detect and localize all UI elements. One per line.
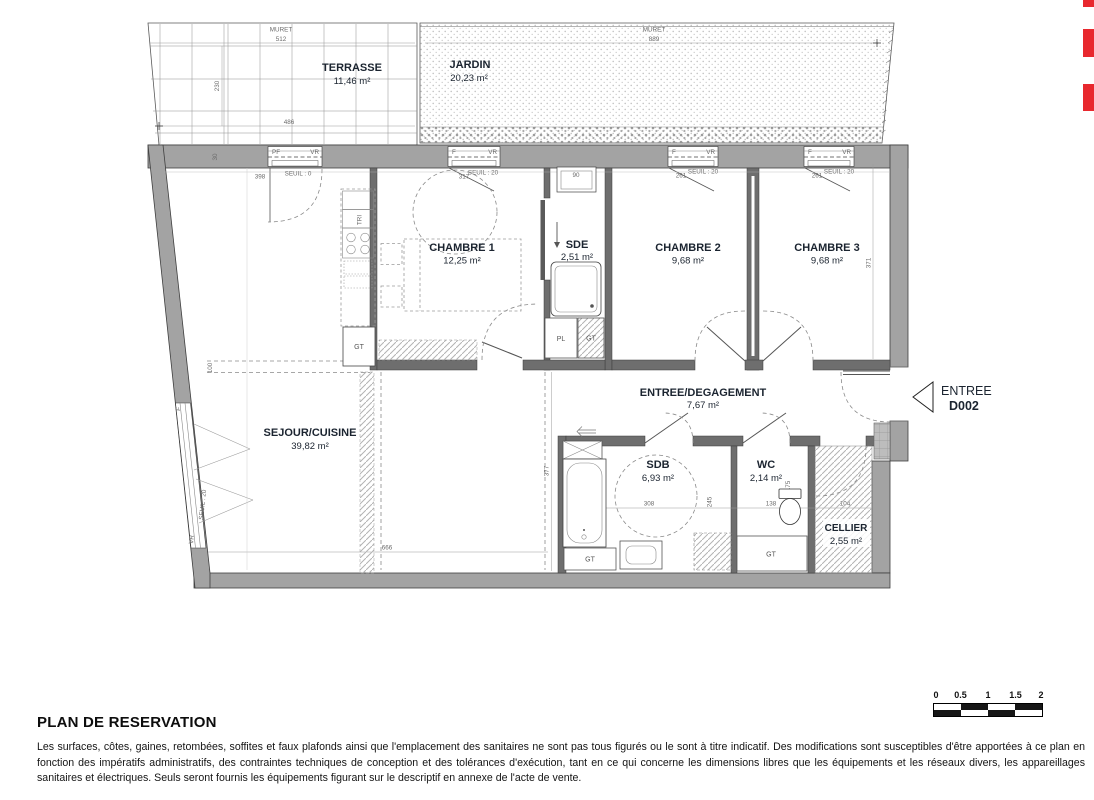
sdb-gt-label: GT xyxy=(585,557,595,564)
wall-wc-cellier xyxy=(808,446,815,573)
wc-width-dim: 138 xyxy=(766,501,777,508)
terrace-depth-dim: 230 xyxy=(214,80,221,91)
room-area-entree: 7,67 m² xyxy=(687,400,719,411)
kitchen-tri-label: TRI xyxy=(357,215,364,225)
red-registration-mark-2 xyxy=(1083,29,1094,57)
room-area-terrasse: 11,46 m² xyxy=(334,76,371,87)
sde-shower xyxy=(551,262,601,316)
wall-bottom xyxy=(194,573,890,588)
window2-dim: 317 xyxy=(459,174,470,181)
page-title: PLAN DE RESERVATION xyxy=(37,714,217,731)
terrace-muret-label: MURET xyxy=(270,27,293,34)
window1-dim: 398 xyxy=(255,174,266,181)
kitchen-gt-label: GT xyxy=(354,344,364,351)
chambre1-nightstand-1 xyxy=(381,244,402,265)
room-label-wc: WC xyxy=(757,459,775,471)
window1-vr-label: VR xyxy=(310,149,319,156)
wall-chambre1-bottom-right xyxy=(523,360,605,370)
sdb-height-dim: 245 xyxy=(707,496,714,507)
room-area-wc: 2,14 m² xyxy=(750,473,782,484)
wall-center-stub xyxy=(745,360,763,370)
scale-label-0: 0 xyxy=(933,690,938,700)
window3-vr-label: VR xyxy=(706,149,715,156)
wall-right-mid xyxy=(890,421,908,461)
room-label-cellier: CELLIER xyxy=(825,523,869,534)
window-3-chambre2: F VR SEUIL : 20 261 xyxy=(668,147,719,192)
partition-walls xyxy=(370,168,890,573)
wall-sdb-wc xyxy=(731,446,737,573)
disclaimer-text: Les surfaces, côtes, gaines, retombées, … xyxy=(37,740,1085,787)
window4-type-label: F xyxy=(808,149,812,156)
terrace-muret-dim: 512 xyxy=(276,36,287,43)
room-area-sdb: 6,93 m² xyxy=(642,473,674,484)
sde: 90 SDE 2,51 m² PL GT xyxy=(545,167,604,358)
chambre2-door-leaf xyxy=(707,327,745,361)
chambre2: CHAMBRE 2 9,68 m² xyxy=(655,242,745,361)
sejour-height-dim: 377 xyxy=(544,465,551,476)
room-label-chambre2: CHAMBRE 2 xyxy=(655,242,720,254)
window2-type-label: F xyxy=(452,149,456,156)
bay-window-vr-label: VR xyxy=(188,534,196,544)
sdb-door-swing xyxy=(663,413,693,443)
wall-channel xyxy=(752,176,755,356)
window-4-chambre3: F VR SEUIL : 20 261 xyxy=(804,147,855,192)
window1-type-label: PF xyxy=(272,149,280,156)
scale-label-2: 2 xyxy=(1038,690,1043,700)
wall-right-upper xyxy=(890,145,908,367)
window3-dim: 261 xyxy=(676,173,687,180)
scale-label-05: 0.5 xyxy=(954,690,967,700)
room-area-jardin: 20,23 m² xyxy=(450,73,488,84)
wc-door-leaf xyxy=(743,413,786,443)
cooktop xyxy=(343,228,374,258)
scale-label-15: 1.5 xyxy=(1009,690,1022,700)
window4-dim: 261 xyxy=(812,173,823,180)
scale-bar-labels: 0 0.5 1 1.5 2 xyxy=(933,690,1043,702)
wall-chambre2-bottom xyxy=(612,360,695,370)
floor-plan: MURET 512 230 486 TERRASSE 11,46 m² MURE… xyxy=(0,0,1094,660)
scale-label-1: 1 xyxy=(985,690,990,700)
wall-top-dim: 30 xyxy=(212,153,219,161)
chambre3: CHAMBRE 3 9,68 m² xyxy=(763,242,860,361)
garden-muret-label: MURET xyxy=(643,27,666,34)
sde-gt-label: GT xyxy=(586,336,596,343)
window1-seuil: SEUIL : 0 xyxy=(285,171,312,178)
sejour-duct-column xyxy=(360,372,374,573)
bay-window: F VR SEUIL : 20 xyxy=(175,403,253,548)
garden-area: MURET 889 JARDIN 20,23 m² xyxy=(420,23,894,143)
wall-right-lower xyxy=(872,461,890,573)
terrace-width-dim: 486 xyxy=(284,119,295,126)
chambre1-soffit xyxy=(379,340,477,360)
sejour-left-dim: 100 xyxy=(207,362,214,373)
sdb-width-dim: 308 xyxy=(644,501,655,508)
room-label-sde: SDE xyxy=(566,239,589,251)
sdb-bathtub xyxy=(563,459,606,547)
entrance-door-code: D002 xyxy=(949,399,979,413)
wall-top xyxy=(148,145,908,168)
room-area-sejour: 39,82 m² xyxy=(291,441,329,452)
chambre3-door-swing xyxy=(763,311,813,361)
entrance-door-swing xyxy=(841,372,891,422)
window3-type-label: F xyxy=(672,149,676,156)
wall-wc-top xyxy=(693,436,743,446)
room-label-sdb: SDB xyxy=(646,459,669,471)
sdb-arrow-marks xyxy=(577,427,596,437)
room-label-terrasse: TERRASSE xyxy=(322,62,382,74)
chambre3-height-dim: 371 xyxy=(866,257,873,268)
wall-chambre3-bottom xyxy=(813,360,890,370)
window-2-chambre1: F VR SEUIL : 20 317 xyxy=(448,147,500,192)
cellier-floor xyxy=(815,446,872,573)
garden-gravel-band xyxy=(420,127,884,143)
wall-sde-left-upper xyxy=(544,168,550,198)
window4-vr-label: VR xyxy=(842,149,851,156)
chambre1-nightstand-2 xyxy=(381,286,402,307)
wall-wc-top-right xyxy=(790,436,820,446)
sdb-duct-box xyxy=(694,533,731,570)
wall-chambre1-bottom-left xyxy=(377,360,477,370)
entree-degagement: ENTREE/DEGAGEMENT 7,67 m² xyxy=(640,387,767,411)
room-area-chambre1: 12,25 m² xyxy=(443,256,481,267)
room-area-chambre2: 9,68 m² xyxy=(672,256,704,267)
entrance-label: ENTREE xyxy=(941,384,992,398)
kitchen-sink xyxy=(344,261,372,274)
sde-pl-label: PL xyxy=(557,336,566,343)
entrance-door: ENTREE D002 xyxy=(841,367,992,459)
window2-vr-label: VR xyxy=(488,149,497,156)
chambre1-door-leaf xyxy=(482,342,522,358)
chambre2-door-swing xyxy=(695,311,745,361)
wc-toilet-bowl xyxy=(780,499,801,525)
room-label-chambre3: CHAMBRE 3 xyxy=(794,242,859,254)
window2-seuil: SEUIL : 20 xyxy=(468,170,499,177)
cellier: CELLIER 2,55 m² xyxy=(815,446,872,573)
entrance-arrow-icon xyxy=(913,382,933,412)
room-label-chambre1: CHAMBRE 1 xyxy=(429,242,494,254)
wall-sde-right xyxy=(605,168,612,370)
red-registration-mark-3 xyxy=(1083,84,1094,111)
sde-sliding-door-panel xyxy=(541,200,546,280)
sde-basin-dim: 90 xyxy=(572,172,580,179)
sejour-width-dim: 666 xyxy=(382,545,393,552)
room-label-entree: ENTREE/DEGAGEMENT xyxy=(640,387,767,399)
terrace-area: MURET 512 230 486 TERRASSE 11,46 m² xyxy=(148,23,417,145)
chambre3-door-leaf xyxy=(763,327,801,361)
room-label-jardin: JARDIN xyxy=(450,59,491,71)
red-registration-mark-1 xyxy=(1083,0,1094,7)
chambre1-door-swing xyxy=(482,304,538,360)
room-area-sde: 2,51 m² xyxy=(561,252,593,263)
room-area-cellier: 2,55 m² xyxy=(830,536,862,547)
chambre1: CHAMBRE 1 12,25 m² xyxy=(379,170,538,360)
garden-muret-dim: 889 xyxy=(649,36,660,43)
room-area-chambre3: 9,68 m² xyxy=(811,256,843,267)
entrance-landing xyxy=(874,423,890,459)
wc-toilet-tank xyxy=(779,489,801,499)
room-label-sejour: SEJOUR/CUISINE xyxy=(264,427,357,439)
wc-gt-label: GT xyxy=(766,552,776,559)
scale-bar xyxy=(933,703,1043,717)
